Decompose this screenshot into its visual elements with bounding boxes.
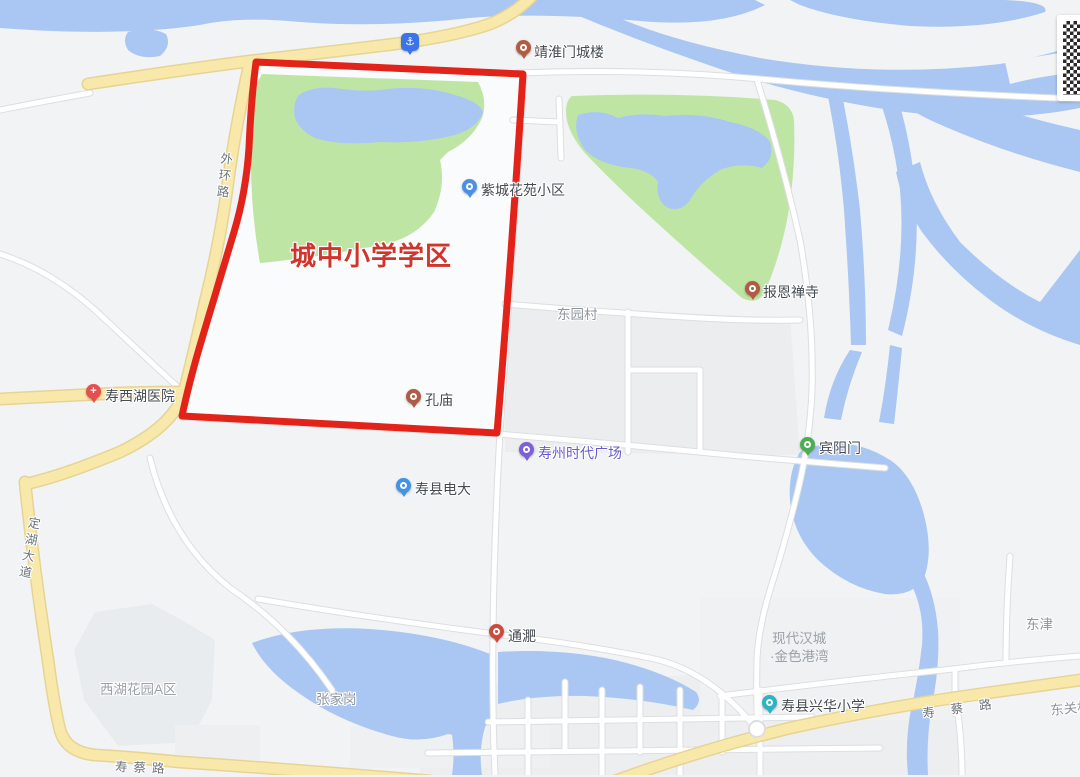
- poi-label-jinghuaimen[interactable]: 靖淮门城楼: [534, 42, 604, 62]
- road-junction: [749, 721, 765, 737]
- area-label-zhangjiagang: 张家岗: [316, 688, 357, 708]
- scenic-icon[interactable]: [800, 437, 815, 452]
- poi-label-zicheng[interactable]: 紫城花苑小区: [481, 180, 565, 200]
- tower-icon[interactable]: [516, 40, 531, 55]
- poi-label-kongmiao[interactable]: 孔庙: [425, 390, 453, 410]
- poi-label-tongfei[interactable]: 通淝: [508, 626, 536, 646]
- school-icon[interactable]: [396, 478, 411, 493]
- hospital-cross-icon[interactable]: +: [86, 384, 101, 399]
- area-label-dongjin: 东津: [1026, 613, 1053, 633]
- mall-icon[interactable]: [519, 442, 534, 457]
- area-label-xihu-huayuan-a: 西湖花园A区: [100, 678, 177, 698]
- district-pond: [294, 88, 483, 144]
- poi-label-shouxihu-hospital[interactable]: 寿西湖医院: [105, 386, 175, 406]
- qr-code-partial: [1057, 15, 1080, 101]
- temple-icon[interactable]: [745, 281, 760, 296]
- school-icon[interactable]: [762, 695, 777, 710]
- poi-label-xinghua-primary[interactable]: 寿县兴华小学: [781, 696, 865, 716]
- area-label-xiandai-hancheng: 现代汉城 ·金色港湾: [770, 630, 829, 666]
- poi-label-dianda[interactable]: 寿县电大: [415, 479, 471, 499]
- anchor-icon[interactable]: ⚓: [401, 33, 419, 51]
- landmark-icon[interactable]: [489, 624, 504, 639]
- poi-label-baoen[interactable]: 报恩禅寺: [763, 282, 819, 302]
- temple-icon[interactable]: [406, 389, 421, 404]
- poi-label-binyang-gate[interactable]: 宾阳门: [819, 438, 861, 458]
- area-label-dongguancun: 东关村: [1049, 695, 1080, 719]
- district-title: 城中小学学区: [290, 236, 452, 273]
- poi-label-times-plaza[interactable]: 寿州时代广场: [538, 443, 622, 463]
- community-icon[interactable]: [462, 179, 477, 194]
- qr-pattern: [1063, 21, 1080, 95]
- map-canvas[interactable]: 城中小学学区 ⚓ 靖淮门城楼 紫城花苑小区 报恩禅寺 + 寿西湖医院 孔庙 寿州…: [0, 0, 1080, 775]
- area-label-dongyuancun: 东园村: [557, 303, 598, 323]
- road-label-shoucai-road-west: 寿蔡路: [115, 756, 171, 777]
